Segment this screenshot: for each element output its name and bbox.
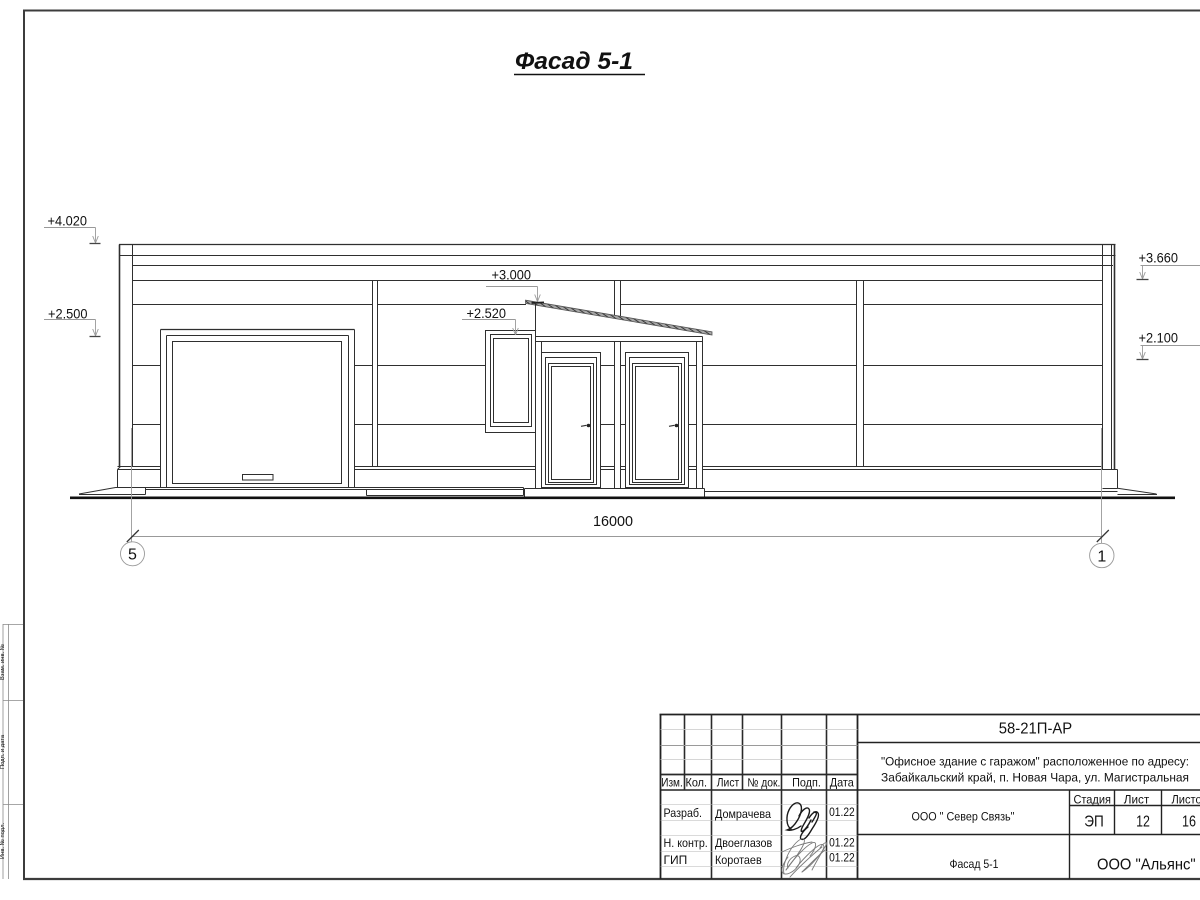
- svg-text:"Офисное здание с гаражом" рас: "Офисное здание с гаражом" расположенное…: [881, 755, 1189, 769]
- svg-text:+3.660: +3.660: [1139, 250, 1179, 265]
- svg-text:ЭП: ЭП: [1084, 814, 1104, 831]
- svg-text:+3.000: +3.000: [492, 267, 532, 282]
- svg-text:Фасад 5-1: Фасад 5-1: [950, 857, 999, 871]
- svg-text:1: 1: [1097, 548, 1106, 565]
- svg-text:+4.020: +4.020: [48, 214, 88, 229]
- svg-text:Дата: Дата: [830, 775, 854, 789]
- svg-text:+2.520: +2.520: [467, 306, 507, 321]
- svg-text:12: 12: [1136, 814, 1150, 831]
- svg-text:5: 5: [128, 547, 137, 564]
- svg-text:Разраб.: Разраб.: [664, 806, 703, 820]
- svg-text:Лист: Лист: [1124, 793, 1150, 807]
- svg-text:16000: 16000: [593, 513, 633, 530]
- svg-text:58-21П-АР: 58-21П-АР: [999, 721, 1072, 738]
- svg-text:Коротаев: Коротаев: [715, 853, 762, 867]
- svg-text:+2.500: +2.500: [48, 307, 88, 322]
- svg-text:01.22: 01.22: [829, 851, 855, 865]
- svg-text:Двоеглазов: Двоеглазов: [715, 836, 772, 850]
- svg-text:Взам. инв. №: Взам. инв. №: [0, 644, 6, 680]
- svg-text:Инв. № подл.: Инв. № подл.: [0, 823, 6, 859]
- svg-text:ГИП: ГИП: [664, 853, 688, 867]
- svg-text:01.22: 01.22: [829, 805, 855, 819]
- svg-text:Кол.: Кол.: [686, 775, 708, 789]
- svg-text:16: 16: [1182, 814, 1196, 831]
- svg-text:Фасад 5-1: Фасад 5-1: [515, 48, 633, 75]
- svg-text:Подп.: Подп.: [792, 775, 821, 789]
- svg-text:Домрачева: Домрачева: [715, 807, 771, 821]
- svg-text:Подп. и дата: Подп. и дата: [0, 734, 6, 769]
- svg-text:Лист: Лист: [717, 775, 740, 789]
- svg-text:+2.100: +2.100: [1139, 330, 1179, 345]
- svg-text:ООО " Север Связь": ООО " Север Связь": [912, 810, 1015, 824]
- svg-text:ООО "Альянс": ООО "Альянс": [1097, 857, 1196, 874]
- svg-text:Забайкальский край, п. Новая Ч: Забайкальский край, п. Новая Чара, ул. М…: [881, 771, 1189, 785]
- svg-text:01.22: 01.22: [829, 836, 855, 850]
- svg-text:Изм.: Изм.: [661, 775, 683, 789]
- svg-text:Листов: Листов: [1172, 793, 1200, 807]
- svg-text:Стадия: Стадия: [1073, 793, 1111, 807]
- svg-text:№ док.: № док.: [747, 775, 780, 789]
- svg-text:Н. контр.: Н. контр.: [664, 836, 708, 850]
